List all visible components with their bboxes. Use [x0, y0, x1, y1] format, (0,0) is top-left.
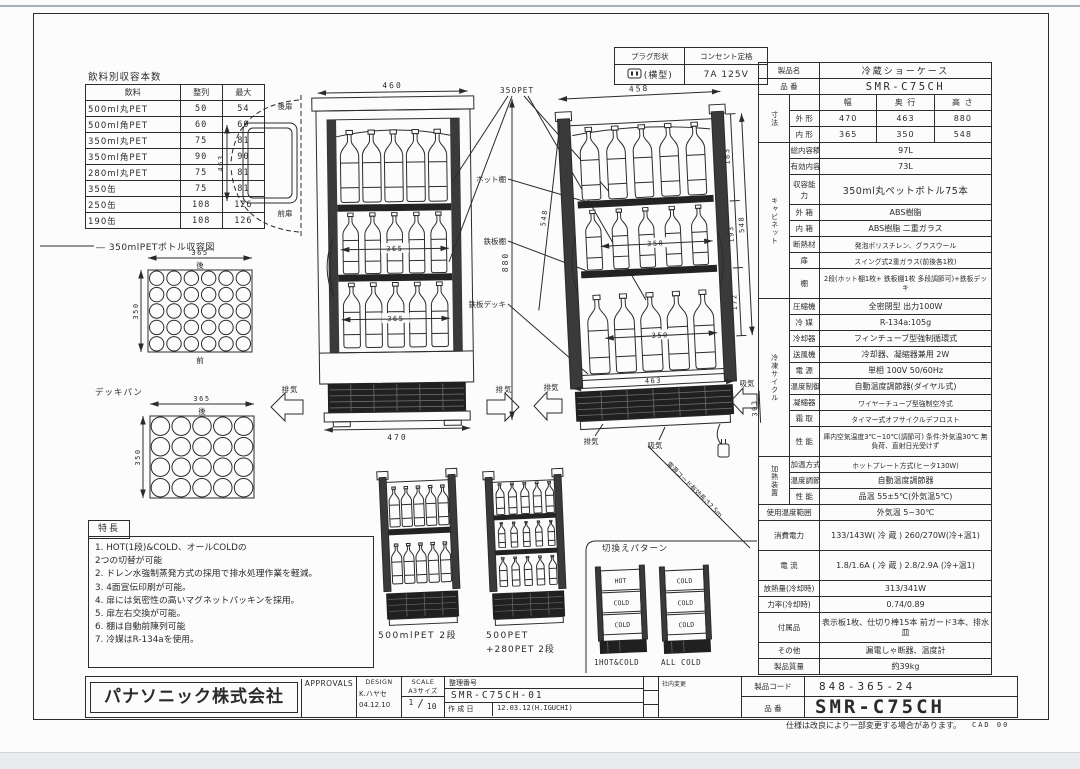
feature-item: 4. 扉には気密性の高いマグネットパッキンを採用。	[95, 595, 367, 608]
bottle-position-circle	[214, 417, 233, 436]
spec-row-value: 133/143W( 冷 蔵 ) 260/270W(冷+温1)	[820, 521, 992, 551]
spec-row-label: 製品名	[759, 63, 820, 79]
bottle-position-circle	[172, 438, 191, 457]
part-no-label: 品 番	[742, 697, 805, 718]
bottle-position-circle	[219, 287, 233, 301]
spec-row-value: 0.74/0.89	[820, 597, 992, 613]
bottle-icon	[691, 205, 709, 266]
shelf-pitch-dim-3: 172	[730, 293, 739, 311]
switch-unit1-shelf-2: COLD	[613, 599, 629, 608]
bottle-icon	[632, 124, 654, 197]
bottle-position-circle	[184, 287, 198, 301]
spec-row-value: 73L	[820, 159, 992, 175]
spec-row-label: 性 能	[789, 489, 820, 505]
beverage-count: 60	[180, 117, 222, 133]
scale-ratio: 1/10	[402, 697, 444, 710]
steel-deck-callout: 鉄板デッキ	[469, 299, 507, 309]
bottle-icon	[401, 486, 413, 526]
beverage-name: 190缶	[86, 213, 181, 229]
mini-unit-b	[483, 468, 570, 625]
bottle-position-circle	[214, 479, 233, 498]
exhaust-left-label: 排気	[282, 384, 299, 394]
bottle-position-circle	[184, 304, 198, 318]
spec-row: 送風機冷却器、凝縮器兼用 2W	[759, 347, 992, 363]
bottle-icon	[428, 129, 447, 201]
outlet-rating-value: 7A 125V	[685, 65, 768, 85]
bottle-icon	[425, 485, 437, 525]
bottle-icon	[440, 542, 452, 582]
spec-row: 消費電力133/143W( 冷 蔵 ) 260/270W(冷+温1)	[759, 521, 992, 551]
beverage-row: 280ml丸PET7581	[86, 165, 265, 181]
front-bottle-row-2	[343, 212, 447, 274]
section-exhaust-label: 排気	[544, 382, 559, 392]
feature-item: 3. 4面宣伝印刷が可能。	[95, 582, 367, 595]
bottle-position-circle	[193, 417, 212, 436]
spec-row: 性 能庫内空気温度3℃~10℃(調節可) 条件:外気温30℃ 無負荷、直射日光受…	[759, 427, 992, 457]
spec-row-label: 放熱量(冷却時)	[759, 581, 820, 597]
company-name: パナソニック株式会社	[90, 682, 298, 713]
created-label: 作 成 日	[445, 703, 493, 716]
bottle-icon	[387, 212, 403, 273]
beverage-row: 350ml丸PET7581	[86, 133, 265, 149]
front-view: 460 365 365	[312, 80, 479, 443]
beverage-count: 81	[222, 133, 264, 149]
spec-row-value: 自動温度調節器	[820, 473, 992, 489]
beverage-name: 500ml角PET	[86, 117, 181, 133]
grid-a-back-label: 後	[196, 260, 204, 270]
switch-unit2-caption: ALL COLD	[661, 658, 701, 667]
bottle-icon	[511, 557, 520, 587]
bottle-position-circle	[201, 320, 215, 334]
spec-row-label: 性 能	[789, 427, 820, 457]
beverage-name: 250缶	[86, 197, 181, 213]
beverage-count: 50	[180, 101, 222, 117]
spec-row: 品 番SMR-C75CH	[759, 79, 992, 95]
beverage-name: 500ml丸PET	[86, 101, 181, 117]
bottle-position-circle	[149, 271, 163, 285]
bottle-position-circle	[219, 337, 233, 351]
spec-row-value: 発泡ポリスチレン、グラスウール	[820, 237, 992, 253]
bottle-position-circle	[193, 479, 212, 498]
exhaust-right-label: 排気	[496, 384, 513, 394]
doc-no: SMR-C75CH-01	[445, 688, 643, 702]
bottle-position-circle	[219, 320, 233, 334]
spec-row-label: 内 箱	[789, 221, 820, 237]
spec-row-value: 単相 100V 50/60Hz	[820, 363, 992, 379]
beverage-count: 90	[222, 149, 264, 165]
beverage-count: 75	[180, 133, 222, 149]
bottle-position-circle	[167, 287, 181, 301]
spec-row: 温度調節自動温度調節器	[759, 473, 992, 489]
spec-row-label: 温度調節	[789, 473, 820, 489]
bottle-icon	[406, 129, 425, 201]
beverage-count: 90	[180, 149, 222, 165]
spec-row: 外 形470463880	[759, 111, 992, 127]
bottle-icon	[638, 207, 656, 268]
bottle-position-circle	[219, 271, 233, 285]
spec-sub-value: 365	[820, 127, 877, 143]
spec-row: 凝縮器ワイヤーチューブ型強制空冷式	[759, 395, 992, 411]
bottle-position-circle	[234, 438, 253, 457]
scale-header: SCALE	[402, 679, 444, 686]
spec-row: 製品質量約39kg	[759, 659, 992, 675]
bottle-icon	[409, 212, 425, 273]
bottle-icon	[692, 289, 716, 368]
bottle-icon	[585, 210, 603, 271]
bottle-icon	[535, 520, 543, 546]
spec-row-value: ワイヤーチューブ型強制空冷式	[820, 395, 992, 411]
bottle-icon	[365, 283, 382, 348]
spec-sub-value: 高 さ	[934, 95, 991, 111]
spec-row-label: 付属品	[759, 613, 820, 643]
spec-row: その他漏電しゃ断器、温度計	[759, 643, 992, 659]
bottle-position-circle	[149, 287, 163, 301]
spec-row-label: 扉	[789, 253, 820, 269]
beverage-row: 190缶108126	[86, 213, 265, 229]
bottle-icon	[545, 481, 554, 513]
beverage-col-header: 最大	[222, 85, 264, 101]
spec-row-value: 庫内空気温度3℃~10℃(調節可) 条件:外気温30℃ 無負荷、直射日光受けず	[820, 427, 992, 457]
power-plug-icon	[717, 424, 729, 457]
spec-row-label: 霜 取	[789, 411, 820, 427]
spec-row: 収容能力350ml丸ペットボトル75本	[759, 175, 992, 205]
spec-group-label: 加熱装置	[759, 457, 790, 505]
beverage-col-header: 整列	[180, 85, 222, 101]
front-base-dim: 470	[387, 433, 408, 442]
bottle-position-circle	[184, 271, 198, 285]
spec-group-label: 寸法	[759, 95, 790, 143]
spec-row: 内 箱ABS樹脂 二重ガラス	[759, 221, 992, 237]
cord-length-note: 電源コード有効長さ2.5m	[665, 459, 725, 519]
grid-b-back-label: 後	[198, 406, 206, 416]
beverage-name: 350缶	[86, 181, 181, 197]
grid-a-front-label: 前	[196, 355, 204, 365]
grid-a-circles	[149, 271, 250, 351]
bottle-icon	[428, 542, 440, 582]
bottle-icon	[391, 544, 403, 584]
side-section-view: 458 350 350 463	[528, 79, 761, 433]
spec-row-value: 313/341W	[820, 581, 992, 597]
revision-cell: 社内変更	[643, 677, 741, 717]
beverage-count: 126	[222, 213, 264, 229]
front-inner-dim-1: 365	[386, 245, 403, 253]
bottle-icon	[343, 213, 359, 274]
bottle-position-circle	[236, 287, 250, 301]
mini-unit-a	[377, 468, 464, 625]
bottle-position-circle	[201, 337, 215, 351]
plug-shape-value: (横型)	[644, 71, 673, 81]
spec-row: 扉スイング式2重ガラス(前後各1枚)	[759, 253, 992, 269]
revision-label: 社内変更	[662, 679, 686, 688]
front-door-label: 前扉	[278, 208, 293, 218]
bottle-icon	[413, 486, 425, 526]
bottle-icon	[365, 213, 381, 274]
spec-sub-value: 880	[934, 111, 991, 127]
bottle-position-circle	[167, 337, 181, 351]
beverage-count: 126	[222, 197, 264, 213]
spec-row-label: 外 箱	[789, 205, 820, 221]
feature-item: 1. HOT(1段)&COLD、オールCOLDの 2つの切替が可能	[95, 542, 367, 568]
bottle-icon	[508, 483, 517, 515]
spec-row: 性 能品温 55±5℃(外気温5℃)	[759, 489, 992, 505]
drawing-sheet: 463 後扉 前扉 460 365 365	[0, 0, 1080, 769]
bottle-icon	[388, 487, 400, 527]
diag-height-dim: 548	[539, 209, 549, 227]
storage-diagram: 365 後 350 前 365 後 350	[40, 246, 254, 498]
spec-row: 内 形365350548	[759, 127, 992, 143]
spec-row-value: 全密閉型 出力100W	[820, 299, 992, 315]
spec-row-value: 350ml丸ペットボトル75本	[820, 175, 992, 205]
spec-row-value: スイング式2重ガラス(前後各1枚)	[820, 253, 992, 269]
bottle-icon	[605, 126, 627, 199]
spec-sub-value: 350	[877, 127, 934, 143]
section-intake-label: 吸気	[740, 378, 755, 388]
spec-row-value: ABS樹脂 二重ガラス	[820, 221, 992, 237]
spec-row-label: その他	[759, 643, 820, 659]
beverage-col-header: 飲料	[86, 85, 181, 101]
spec-row-value: 自動温度調節器(ダイヤル式)	[820, 379, 992, 395]
spec-row-value: 品温 55±5℃(外気温5℃)	[820, 489, 992, 505]
spec-row-value: ABS樹脂	[820, 205, 992, 221]
feature-item: 2. ドレン水強制蒸発方式の採用で排水処理作業を軽減。	[95, 568, 367, 581]
bottle-position-circle	[214, 438, 233, 457]
spec-row: 放熱量(冷却時)313/341W	[759, 581, 992, 597]
bottle-icon	[403, 543, 415, 583]
title-block: パナソニック株式会社 APPROVALS DESIGN K.ハヤセ 04.12.…	[85, 676, 1018, 718]
grid-a-depth-dim: 350	[132, 302, 140, 319]
hot-shelf-callout: ホット棚	[476, 174, 506, 184]
spec-sub-value: 幅	[820, 95, 877, 111]
rear-door-label: 後扉	[278, 101, 293, 111]
spec-row-value: ホットプレート方式(ヒータ130W)	[820, 457, 992, 473]
spec-row: 有効内容積73L	[759, 159, 992, 175]
spec-row-label: 冷 媒	[789, 315, 820, 331]
spec-row: 使用温度範囲外気温 5~30℃	[759, 505, 992, 521]
bottle-icon	[415, 543, 427, 583]
plug-icon	[627, 68, 642, 79]
bottle-icon	[549, 555, 558, 585]
created-value: 12.03.12(H.IGUCHI)	[493, 703, 573, 716]
spec-table: 製品名冷蔵ショーケース品 番SMR-C75CH寸法幅奥 行高 さ外 形47046…	[758, 62, 992, 675]
bottle-position-circle	[167, 320, 181, 334]
front-bottle-row-1	[340, 129, 447, 202]
beverage-table-title: 飲料別収容本数	[88, 69, 162, 83]
spec-row-value: 冷蔵ショーケース	[820, 63, 992, 79]
bottle-icon	[547, 520, 555, 546]
spec-row-value: SMR-C75CH	[820, 79, 992, 95]
spec-row-value: 97L	[820, 143, 992, 159]
spec-row-label: 冷却器	[789, 331, 820, 347]
section-width-dim: 458	[629, 84, 650, 94]
beverage-count: 54	[222, 101, 264, 117]
design-name: K.ハヤセ	[359, 689, 401, 699]
bottle-position-circle	[219, 304, 233, 318]
spec-row: 製品名冷蔵ショーケース	[759, 63, 992, 79]
spec-row: 力率(冷却時)0.74/0.89	[759, 597, 992, 613]
bottle-position-circle	[214, 458, 233, 477]
spec-row-label: 使用温度範囲	[759, 505, 820, 521]
product-code-label: 製品コード	[742, 677, 805, 696]
bottle-icon	[523, 521, 531, 547]
bottle-position-circle	[201, 304, 215, 318]
spec-row-value: 1.8/1.6A ( 冷 蔵 ) 2.8/2.9A (冷+温1)	[820, 551, 992, 581]
cad-note: CAD 00	[972, 721, 1009, 729]
steel-shelf-callout: 鉄板棚	[484, 236, 507, 246]
doc-no-cell: 整理番号 SMR-C75CH-01 作 成 日 12.03.12(H.IGUCH…	[444, 677, 643, 717]
bottle-position-circle	[193, 458, 212, 477]
design-cell: DESIGN K.ハヤセ 04.12.10	[356, 677, 401, 717]
bottle-icon	[495, 483, 504, 515]
spec-row-value: 表示板1枚、仕切り棒15本 前ガード3本、排水皿	[820, 613, 992, 643]
bottle-icon	[524, 556, 533, 586]
bottle-icon	[664, 206, 682, 267]
spec-row: 断熱材発泡ポリスチレン、グラスウール	[759, 237, 992, 253]
bottle-icon	[533, 482, 542, 514]
section-exhaust-arrow-icon	[534, 392, 562, 420]
switch-unit1-shelf-1: HOT	[614, 577, 626, 586]
section-grill	[575, 384, 734, 422]
section-bottle-row-1	[579, 122, 707, 201]
beverage-header-row: 飲料整列最大	[86, 85, 265, 101]
switch-patterns: 切換えパターン HOT COLD COLD 1HOT&COLD	[586, 541, 757, 673]
bottle-position-circle	[193, 438, 212, 457]
bottle-icon	[658, 123, 680, 196]
bottle-position-circle	[184, 320, 198, 334]
feature-item: 7. 冷媒はR-134aを使用。	[95, 634, 367, 647]
beverage-count: 75	[180, 181, 222, 197]
spec-row-label: 電 流	[759, 551, 820, 581]
bottle-position-circle	[151, 417, 170, 436]
spec-row-value: 漏電しゃ断器、温度計	[820, 643, 992, 659]
spec-row-label: 凝縮器	[789, 395, 820, 411]
feature-item: 5. 扉左右交換が可能。	[95, 608, 367, 621]
bottle-position-circle	[151, 458, 170, 477]
spec-row-label: 力率(冷却時)	[759, 597, 820, 613]
spec-row: 外 箱ABS樹脂	[759, 205, 992, 221]
bottle-icon	[536, 555, 545, 585]
mini-unit-a-label: 500mlPET 2段	[378, 629, 457, 641]
switch-unit2-shelf-3: COLD	[678, 621, 694, 630]
beverage-table: 飲料整列最大500ml丸PET5054500ml角PET6060350ml丸PE…	[85, 84, 265, 229]
spec-row-label: 電 源	[789, 363, 820, 379]
spec-row: 加熱装置加温方式ホットプレート方式(ヒータ130W)	[759, 457, 992, 473]
spec-row-value: 2段(ホット棚1枚+ 鉄板棚1枚 多段調節可)+鉄板デッキ	[820, 269, 992, 299]
switch-unit1-shelf-3: COLD	[614, 621, 630, 630]
spec-group-label: 冷凍サイクル	[759, 299, 790, 457]
spec-row-label: 製品質量	[759, 659, 820, 675]
bottle-icon	[685, 122, 707, 195]
bottle-position-circle	[149, 337, 163, 351]
beverage-name: 350ml角PET	[86, 149, 181, 165]
design-date: 04.12.10	[359, 701, 401, 709]
spec-row-label: 総内容積	[789, 143, 820, 159]
spec-sub-value: 470	[820, 111, 877, 127]
shelf-pitch-dim-1: 183	[723, 147, 732, 165]
photo-bottom-edge	[0, 752, 1080, 769]
bottle-position-circle	[234, 417, 253, 436]
bottle-position-circle	[236, 271, 250, 285]
spec-row: キャビネット総内容積97L	[759, 143, 992, 159]
spec-row: 霜 取タイマー式オフサイクルデフロスト	[759, 411, 992, 427]
spec-row-label	[789, 95, 820, 111]
spec-group-label: キャビネット	[759, 143, 790, 299]
switch-unit2-shelf-2: COLD	[677, 599, 693, 608]
front-inner-dim-2: 365	[387, 315, 404, 323]
revision-note: 仕様は改良により一部変更する場合があります。	[786, 720, 961, 731]
bottle-icon	[431, 212, 447, 273]
front-height-dim: 880	[501, 252, 510, 272]
bottle-position-circle	[172, 417, 191, 436]
spec-row: 付属品表示板1枚、仕切り棒15本 前ガード3本、排水皿	[759, 613, 992, 643]
bottle-icon	[409, 282, 426, 347]
bottle-position-circle	[167, 304, 181, 318]
bottle-position-circle	[234, 479, 253, 498]
exhaust-small-callout: 排気	[584, 436, 599, 446]
bottle-icon	[520, 482, 529, 514]
bottle-position-circle	[151, 438, 170, 457]
section-bottle-row-2	[585, 205, 709, 271]
beverage-count: 81	[222, 181, 264, 197]
switch-unit2-shelf-1: COLD	[676, 577, 692, 586]
bottle-icon	[343, 283, 360, 348]
spec-row: 冷 媒R-134a:105g	[759, 315, 992, 331]
part-no: SMR-C75CH	[805, 697, 945, 718]
bottle-position-circle	[149, 320, 163, 334]
beverage-row: 500ml角PET6060	[86, 117, 265, 133]
bottle-position-circle	[184, 337, 198, 351]
bottle-position-circle	[149, 304, 163, 318]
bottle-icon	[384, 130, 403, 202]
front-grill	[328, 382, 466, 413]
product-cell: 製品コード 848-365-24 品 番 SMR-C75CH	[741, 677, 1017, 717]
spec-row: 棚2段(ホット棚1枚+ 鉄板棚1枚 多段調節可)+鉄板デッキ	[759, 269, 992, 299]
exhaust-right-arrow-icon	[487, 393, 519, 421]
shelf-pitch-dim-2: 193	[727, 225, 736, 243]
beverage-count: 81	[222, 165, 264, 181]
beverage-count: 108	[180, 213, 222, 229]
spec-sub-value: 548	[934, 127, 991, 143]
bottle-icon	[362, 130, 381, 202]
beverage-row: 350ml角PET9090	[86, 149, 265, 165]
spec-row-label: 圧縮機	[789, 299, 820, 315]
bottle-position-circle	[201, 287, 215, 301]
bottle-icon	[437, 485, 449, 525]
spec-row-value: タイマー式オフサイクルデフロスト	[820, 411, 992, 427]
spec-row: 冷凍サイクル圧縮機全密閉型 出力100W	[759, 299, 992, 315]
bottle-position-circle	[167, 271, 181, 285]
spec-row: 寸法幅奥 行高 さ	[759, 95, 992, 111]
spec-row-label: 温度制御	[789, 379, 820, 395]
exhaust-left-arrow-icon	[271, 393, 303, 421]
beverage-count: 60	[222, 117, 264, 133]
grid-b-depth-dim: 350	[134, 448, 142, 465]
switch-unit1-caption: 1HOT&COLD	[594, 658, 639, 667]
spec-row-value: フィンチューブ型強制循環式	[820, 331, 992, 347]
beverage-name: 280ml丸PET	[86, 165, 181, 181]
section-shelf-dim-1: 350	[647, 239, 665, 248]
bottle-position-circle	[201, 271, 215, 285]
beverage-row: 350缶7581	[86, 181, 265, 197]
spec-row-label: 収容能力	[789, 175, 820, 205]
spec-row-label: 品 番	[759, 79, 820, 95]
section-base-width-dim: 463	[645, 377, 663, 386]
bottle-icon	[498, 522, 506, 548]
plug-table: プラグ形状 コンセント定格 (横型) 7A 125V	[614, 47, 768, 85]
bottle-position-circle	[236, 320, 250, 334]
bottle-position-circle	[234, 458, 253, 477]
spec-row: 電 流1.8/1.6A ( 冷 蔵 ) 2.8/2.9A (冷+温1)	[759, 551, 992, 581]
bottle-icon	[431, 282, 448, 347]
